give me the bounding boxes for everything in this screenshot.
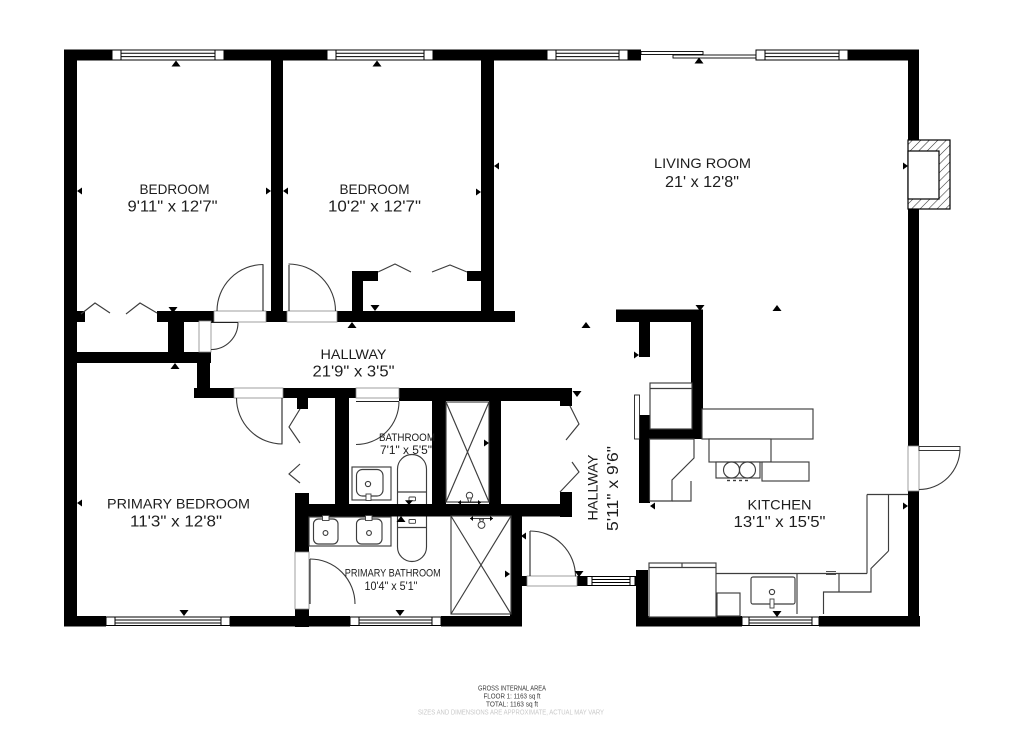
svg-text:TOTAL: 1163 sq ft: TOTAL: 1163 sq ft	[486, 702, 538, 709]
svg-text:10'2" x 12'7": 10'2" x 12'7"	[328, 199, 421, 216]
svg-text:GROSS INTERNAL AREA: GROSS INTERNAL AREA	[478, 686, 546, 693]
svg-text:21'9" x 3'5": 21'9" x 3'5"	[313, 364, 395, 381]
svg-text:13'1" x 15'5": 13'1" x 15'5"	[734, 514, 826, 531]
svg-text:PRIMARY BEDROOM: PRIMARY BEDROOM	[107, 496, 250, 512]
svg-text:9'11" x 12'7": 9'11" x 12'7"	[128, 199, 218, 216]
svg-text:LIVING ROOM: LIVING ROOM	[654, 155, 751, 171]
svg-text:BEDROOM: BEDROOM	[140, 181, 210, 197]
svg-text:BEDROOM: BEDROOM	[340, 181, 410, 197]
svg-text:KITCHEN: KITCHEN	[748, 497, 812, 513]
svg-text:5'11" x 9'6": 5'11" x 9'6"	[605, 446, 622, 531]
svg-text:FLOOR 1: 1163 sq ft: FLOOR 1: 1163 sq ft	[484, 694, 541, 701]
svg-text:11'3" x 12'8": 11'3" x 12'8"	[130, 514, 222, 531]
svg-text:SIZES AND DIMENSIONS ARE APPRO: SIZES AND DIMENSIONS ARE APPROXIMATE, AC…	[418, 710, 604, 717]
svg-text:21' x 12'8": 21' x 12'8"	[665, 174, 739, 191]
svg-text:HALLWAY: HALLWAY	[321, 346, 388, 362]
svg-text:7'1" x 5'5": 7'1" x 5'5"	[380, 443, 432, 457]
svg-text:HALLWAY: HALLWAY	[585, 454, 601, 521]
svg-text:10'4" x 5'1": 10'4" x 5'1"	[365, 579, 418, 593]
svg-text:PRIMARY BATHROOM: PRIMARY BATHROOM	[345, 568, 441, 580]
